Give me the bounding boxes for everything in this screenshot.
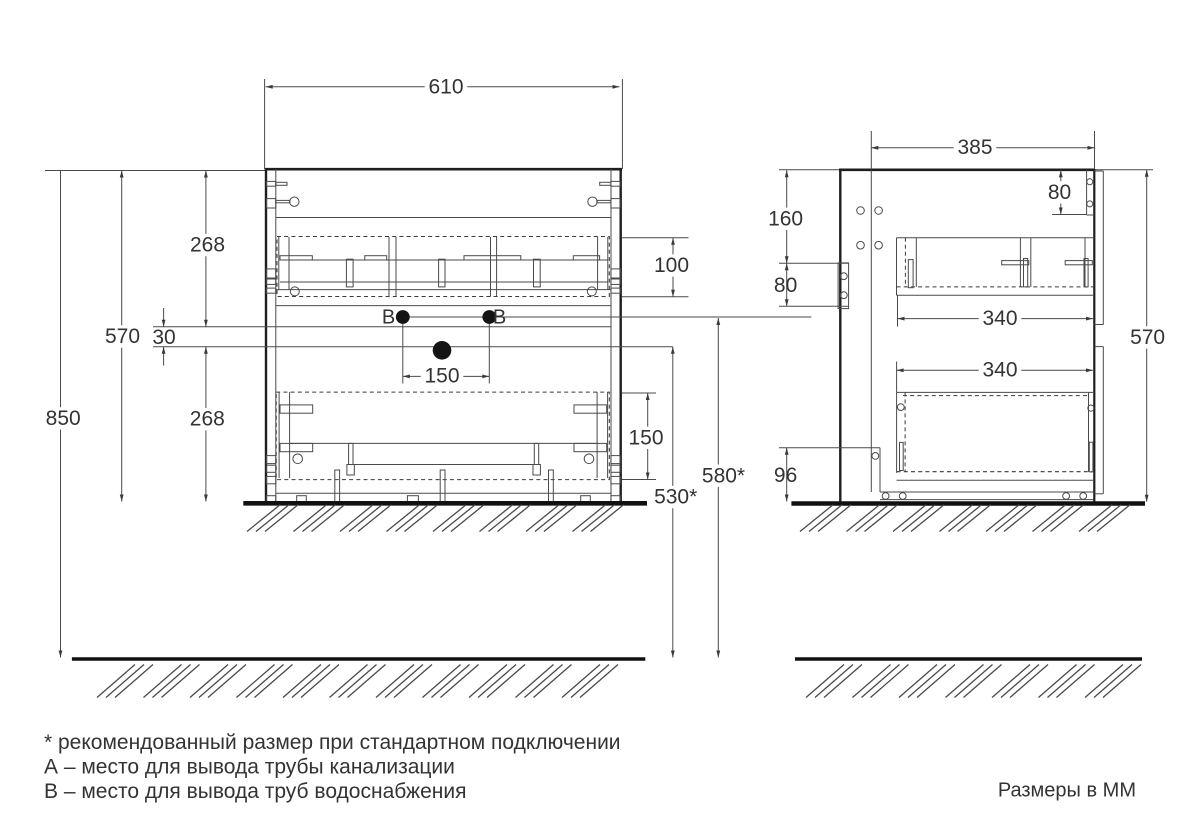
svg-text:150: 150 [628, 426, 663, 449]
svg-text:100: 100 [654, 254, 689, 277]
svg-text:96: 96 [774, 464, 797, 487]
svg-text:160: 160 [768, 207, 803, 230]
svg-text:570: 570 [105, 325, 140, 348]
svg-text:30: 30 [152, 326, 175, 349]
svg-text:530*: 530* [654, 486, 697, 509]
svg-text:Размеры в ММ: Размеры в ММ [998, 779, 1136, 801]
svg-text:850: 850 [46, 407, 81, 430]
svg-text:В – место для вывода труб водо: В – место для вывода труб водоснабжения [44, 780, 466, 803]
svg-text:В: В [382, 307, 395, 329]
svg-text:А – место для вывода трубы кан: А – место для вывода трубы канализации [44, 756, 455, 779]
svg-text:570: 570 [1130, 326, 1165, 349]
svg-text:340: 340 [982, 359, 1017, 382]
svg-text:* рекомендованный размер при с: * рекомендованный размер при стандартном… [44, 731, 621, 754]
svg-text:80: 80 [1048, 181, 1071, 204]
svg-text:80: 80 [774, 274, 797, 297]
svg-text:150: 150 [424, 364, 459, 387]
svg-text:268: 268 [190, 408, 225, 431]
svg-text:610: 610 [428, 75, 463, 98]
svg-text:385: 385 [957, 136, 992, 159]
svg-text:580*: 580* [702, 464, 745, 487]
svg-text:340: 340 [982, 307, 1017, 330]
svg-text:268: 268 [190, 234, 225, 257]
svg-text:В: В [493, 307, 506, 329]
